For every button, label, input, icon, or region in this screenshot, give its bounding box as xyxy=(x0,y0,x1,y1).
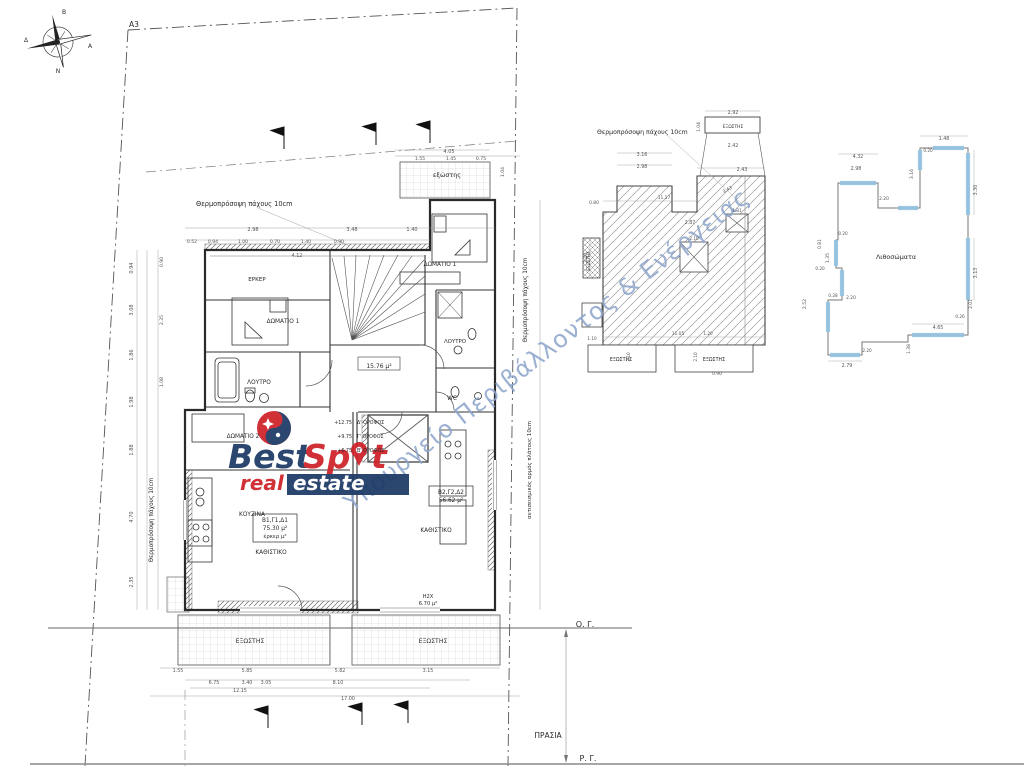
label-mid-exostis-br: ΕΞΩΣΤΗΣ xyxy=(703,357,725,363)
dim-label: 1.10 xyxy=(587,336,597,341)
dim-label: 1.31 xyxy=(732,208,742,213)
toilet xyxy=(468,329,476,340)
dim-label: 2.20 xyxy=(879,196,889,202)
label-prasia: ΠΡΑΣΙΑ xyxy=(534,731,562,740)
dim-label: 11.17 xyxy=(658,195,671,201)
dim-label: 5.82 xyxy=(335,668,346,674)
wardrobe xyxy=(400,272,460,284)
arrow-up-icon xyxy=(564,629,568,637)
dim-label: 2.10 xyxy=(626,352,631,362)
dim-label: 12.15 xyxy=(233,688,247,694)
section-flag-icon xyxy=(395,701,408,723)
dim-label: 2.42 xyxy=(728,143,739,149)
dim-label: 0.94 xyxy=(208,239,218,245)
dim-label: 0.20 xyxy=(815,266,825,271)
dim-label: 1.88 xyxy=(129,444,135,455)
dim-label: 2.10 xyxy=(693,352,698,362)
anno-thermo-top: Θερμοπρόσοψη πάχους 10cm xyxy=(196,200,293,208)
anno-thermo-left: Θερμοπρόσοψη πάχους 10cm xyxy=(148,477,155,562)
label-kathistiko-right: ΚΑΘΙΣΤΙΚΟ xyxy=(420,528,452,534)
label-apt1-area: 75.30 μ² xyxy=(263,525,287,532)
plot-boundary-north xyxy=(128,8,517,30)
dim-label: 0.90 xyxy=(334,239,344,245)
dim-label: 0.75 xyxy=(476,156,486,162)
dim-label: 2.98 xyxy=(247,227,258,233)
label-apt2-code: Β2,Γ2,Δ2 xyxy=(438,490,464,496)
label-loutro-right: ΛΟΥΤΡΟ xyxy=(444,339,466,345)
dim-label: 17.00 xyxy=(341,696,355,702)
logo-spot-right-text: t xyxy=(371,437,388,476)
dim-label: 2.20 xyxy=(846,295,856,301)
floor-b-label: Β' ΟΡΟΦΟΣ xyxy=(357,448,384,454)
label-og: Ο. Γ. xyxy=(576,620,594,629)
dim-label: 0.70 xyxy=(270,239,280,245)
bathtub xyxy=(215,358,239,402)
dim-label: 1.40 xyxy=(406,227,417,233)
dim-label: 3.40 xyxy=(242,680,253,686)
dim-label: 1.38 xyxy=(906,344,912,354)
dim-label: 1.20 xyxy=(703,331,713,336)
dim-label: 0.52 xyxy=(187,239,197,245)
label-erker: ΕΡΚΕΡ xyxy=(248,277,266,283)
dim-label: 2.98 xyxy=(637,164,648,170)
label-apt2-area: 56.62 μ² xyxy=(439,497,463,504)
dim-label: 1.04 xyxy=(696,122,702,132)
dim-label: 0.94 xyxy=(129,262,135,273)
section-flag-icon xyxy=(363,123,376,145)
dim-label: 4.05 xyxy=(443,149,454,155)
anno-thermo-right: Θερμοπρόσοψη πάχους 10cm xyxy=(522,257,529,342)
label-exostis-br: ΕΞΩΣΤΗΣ xyxy=(419,638,448,645)
label-h2x-area: 6.70 μ² xyxy=(419,601,438,607)
label-lithosomata: Λιθοσώματα xyxy=(876,253,916,261)
dim-label: 2.52 xyxy=(802,299,808,309)
dim-label: 0.26 xyxy=(955,314,965,319)
label-h2x: Η2Χ xyxy=(423,594,434,600)
dim-label: 2.40 xyxy=(583,253,589,263)
anno-seismic-joint: αντισεισμικός αρμός πλάτους 10cm xyxy=(526,421,533,519)
dim-label: 3.16 xyxy=(909,169,915,179)
dim-label: 1.00 xyxy=(238,239,248,245)
label-domatio1-right: ΔΩΜΑΤΙΟ 1 xyxy=(424,262,457,268)
dim-label: 3.05 xyxy=(261,680,272,686)
label-apt1-erker: έρκερ μ² xyxy=(263,533,286,540)
dim-label: 3.48 xyxy=(346,227,357,233)
dim-label: 3.08 xyxy=(129,304,135,315)
logo-estate-text: estate xyxy=(293,471,365,495)
dim-label: 3.30 xyxy=(973,185,979,196)
label-loutro-left: ΛΟΥΤΡΟ xyxy=(247,380,271,386)
floor-d-level: +12.75 xyxy=(334,420,352,426)
dim-label: 2.87 xyxy=(685,220,696,226)
dim-label: 0.81 xyxy=(817,239,823,249)
section-flag-icon xyxy=(255,706,268,728)
dim-label: 2.10 xyxy=(689,236,699,241)
anno-thermo-mid: Θερμοπρόσοψη πάχους 10cm xyxy=(597,128,688,136)
plot-boundary-west xyxy=(85,30,128,766)
dim-label: 1.08 xyxy=(159,377,165,387)
toilet xyxy=(246,390,255,402)
label-area-1576: 15.76 μ² xyxy=(366,363,392,370)
dim-label: 1.55 xyxy=(415,156,425,162)
dim-label: 2.20 xyxy=(862,348,872,353)
label-domatio1-left: ΔΩΜΑΤΙΟ 1 xyxy=(267,319,300,325)
sink xyxy=(260,394,269,403)
label-rg: Ρ. Γ. xyxy=(580,754,597,763)
dim-label: 1.55 xyxy=(173,668,184,674)
floor-c-level: +9.75 xyxy=(337,434,352,440)
arrow-down-icon xyxy=(564,755,568,763)
dim-label: 11.05 xyxy=(672,331,685,337)
architectural-site-plan: Υπουργείο Περιβάλλοντος & Ενέργειας Best… xyxy=(0,0,1024,768)
compass-w-label: Δ xyxy=(24,37,29,44)
label-exostis-small: εξώστης xyxy=(433,171,461,179)
dim-label: 8.10 xyxy=(333,680,344,686)
dim-label: 3.16 xyxy=(637,152,648,158)
section-flag-icon xyxy=(349,703,362,725)
label-exostis-bl: ΕΞΩΣΤΗΣ xyxy=(236,638,265,645)
compass-rose-icon xyxy=(21,8,97,75)
dim-label: 4.65 xyxy=(933,325,944,331)
sink xyxy=(454,346,462,354)
dim-label: 6.75 xyxy=(209,680,220,686)
dim-label: 0.90 xyxy=(712,371,722,377)
dim-label: 4.70 xyxy=(129,511,135,522)
dim-label: 0.20 xyxy=(838,231,848,236)
dim-label: 2.79 xyxy=(842,363,853,369)
dim-label: 1.40 xyxy=(301,239,311,245)
label-a3: A3 xyxy=(129,20,139,29)
dim-label: 5.85 xyxy=(242,668,253,674)
balcony-top-right xyxy=(400,162,490,198)
dim-label: 4.12 xyxy=(292,253,303,259)
dim-label: 1.45 xyxy=(446,156,456,162)
label-domatio2: ΔΩΜΑΤΙΟ 2 xyxy=(227,434,260,440)
dim-label: 2.92 xyxy=(728,110,739,116)
dim-label: 2.01 xyxy=(968,299,974,309)
section-flag-icon xyxy=(417,121,430,143)
dim-label: 2.35 xyxy=(129,576,135,587)
compass-s-label: Ν xyxy=(56,68,61,75)
compass-e-label: Α xyxy=(88,43,93,50)
section-flag-icon xyxy=(271,127,284,149)
dim-label: 1.04 xyxy=(500,167,506,177)
label-wc: WC xyxy=(447,396,457,402)
logo-real-text: real xyxy=(240,471,285,495)
dim-label: 2.43 xyxy=(737,167,748,173)
dim-label: 3.15 xyxy=(423,668,434,674)
dim-label: 1.98 xyxy=(129,396,135,407)
compass-n-label: Β xyxy=(62,9,66,16)
dim-label: 2.98 xyxy=(851,166,862,172)
dim-label: 1.35 xyxy=(825,253,831,263)
dim-label: 0.28 xyxy=(828,293,838,298)
dim-label: 0.20 xyxy=(923,148,933,153)
label-kathistiko-left: ΚΑΘΙΣΤΙΚΟ xyxy=(255,550,287,556)
label-apt1-code: Β1,Γ1,Δ1 xyxy=(262,518,288,524)
dim-label: 1.86 xyxy=(129,349,135,360)
dim-label: 1.48 xyxy=(939,136,950,142)
dim-label: 0.80 xyxy=(589,200,599,206)
dim-label: 2.35 xyxy=(159,315,165,325)
dim-label: 3.13 xyxy=(973,268,979,279)
floor-d-label: Δ' ΟΡΟΦΟΣ xyxy=(357,420,384,426)
floor-c-label: Γ' ΟΡΟΦΟΣ xyxy=(357,434,384,440)
dim-label: 0.90 xyxy=(159,257,165,267)
dim-label: 4.32 xyxy=(853,154,864,160)
staircase xyxy=(332,255,425,340)
floor-b-level: +6.75 xyxy=(337,448,352,454)
label-mid-exostis-top: ΕΞΩΣΤΗΣ xyxy=(723,124,744,130)
